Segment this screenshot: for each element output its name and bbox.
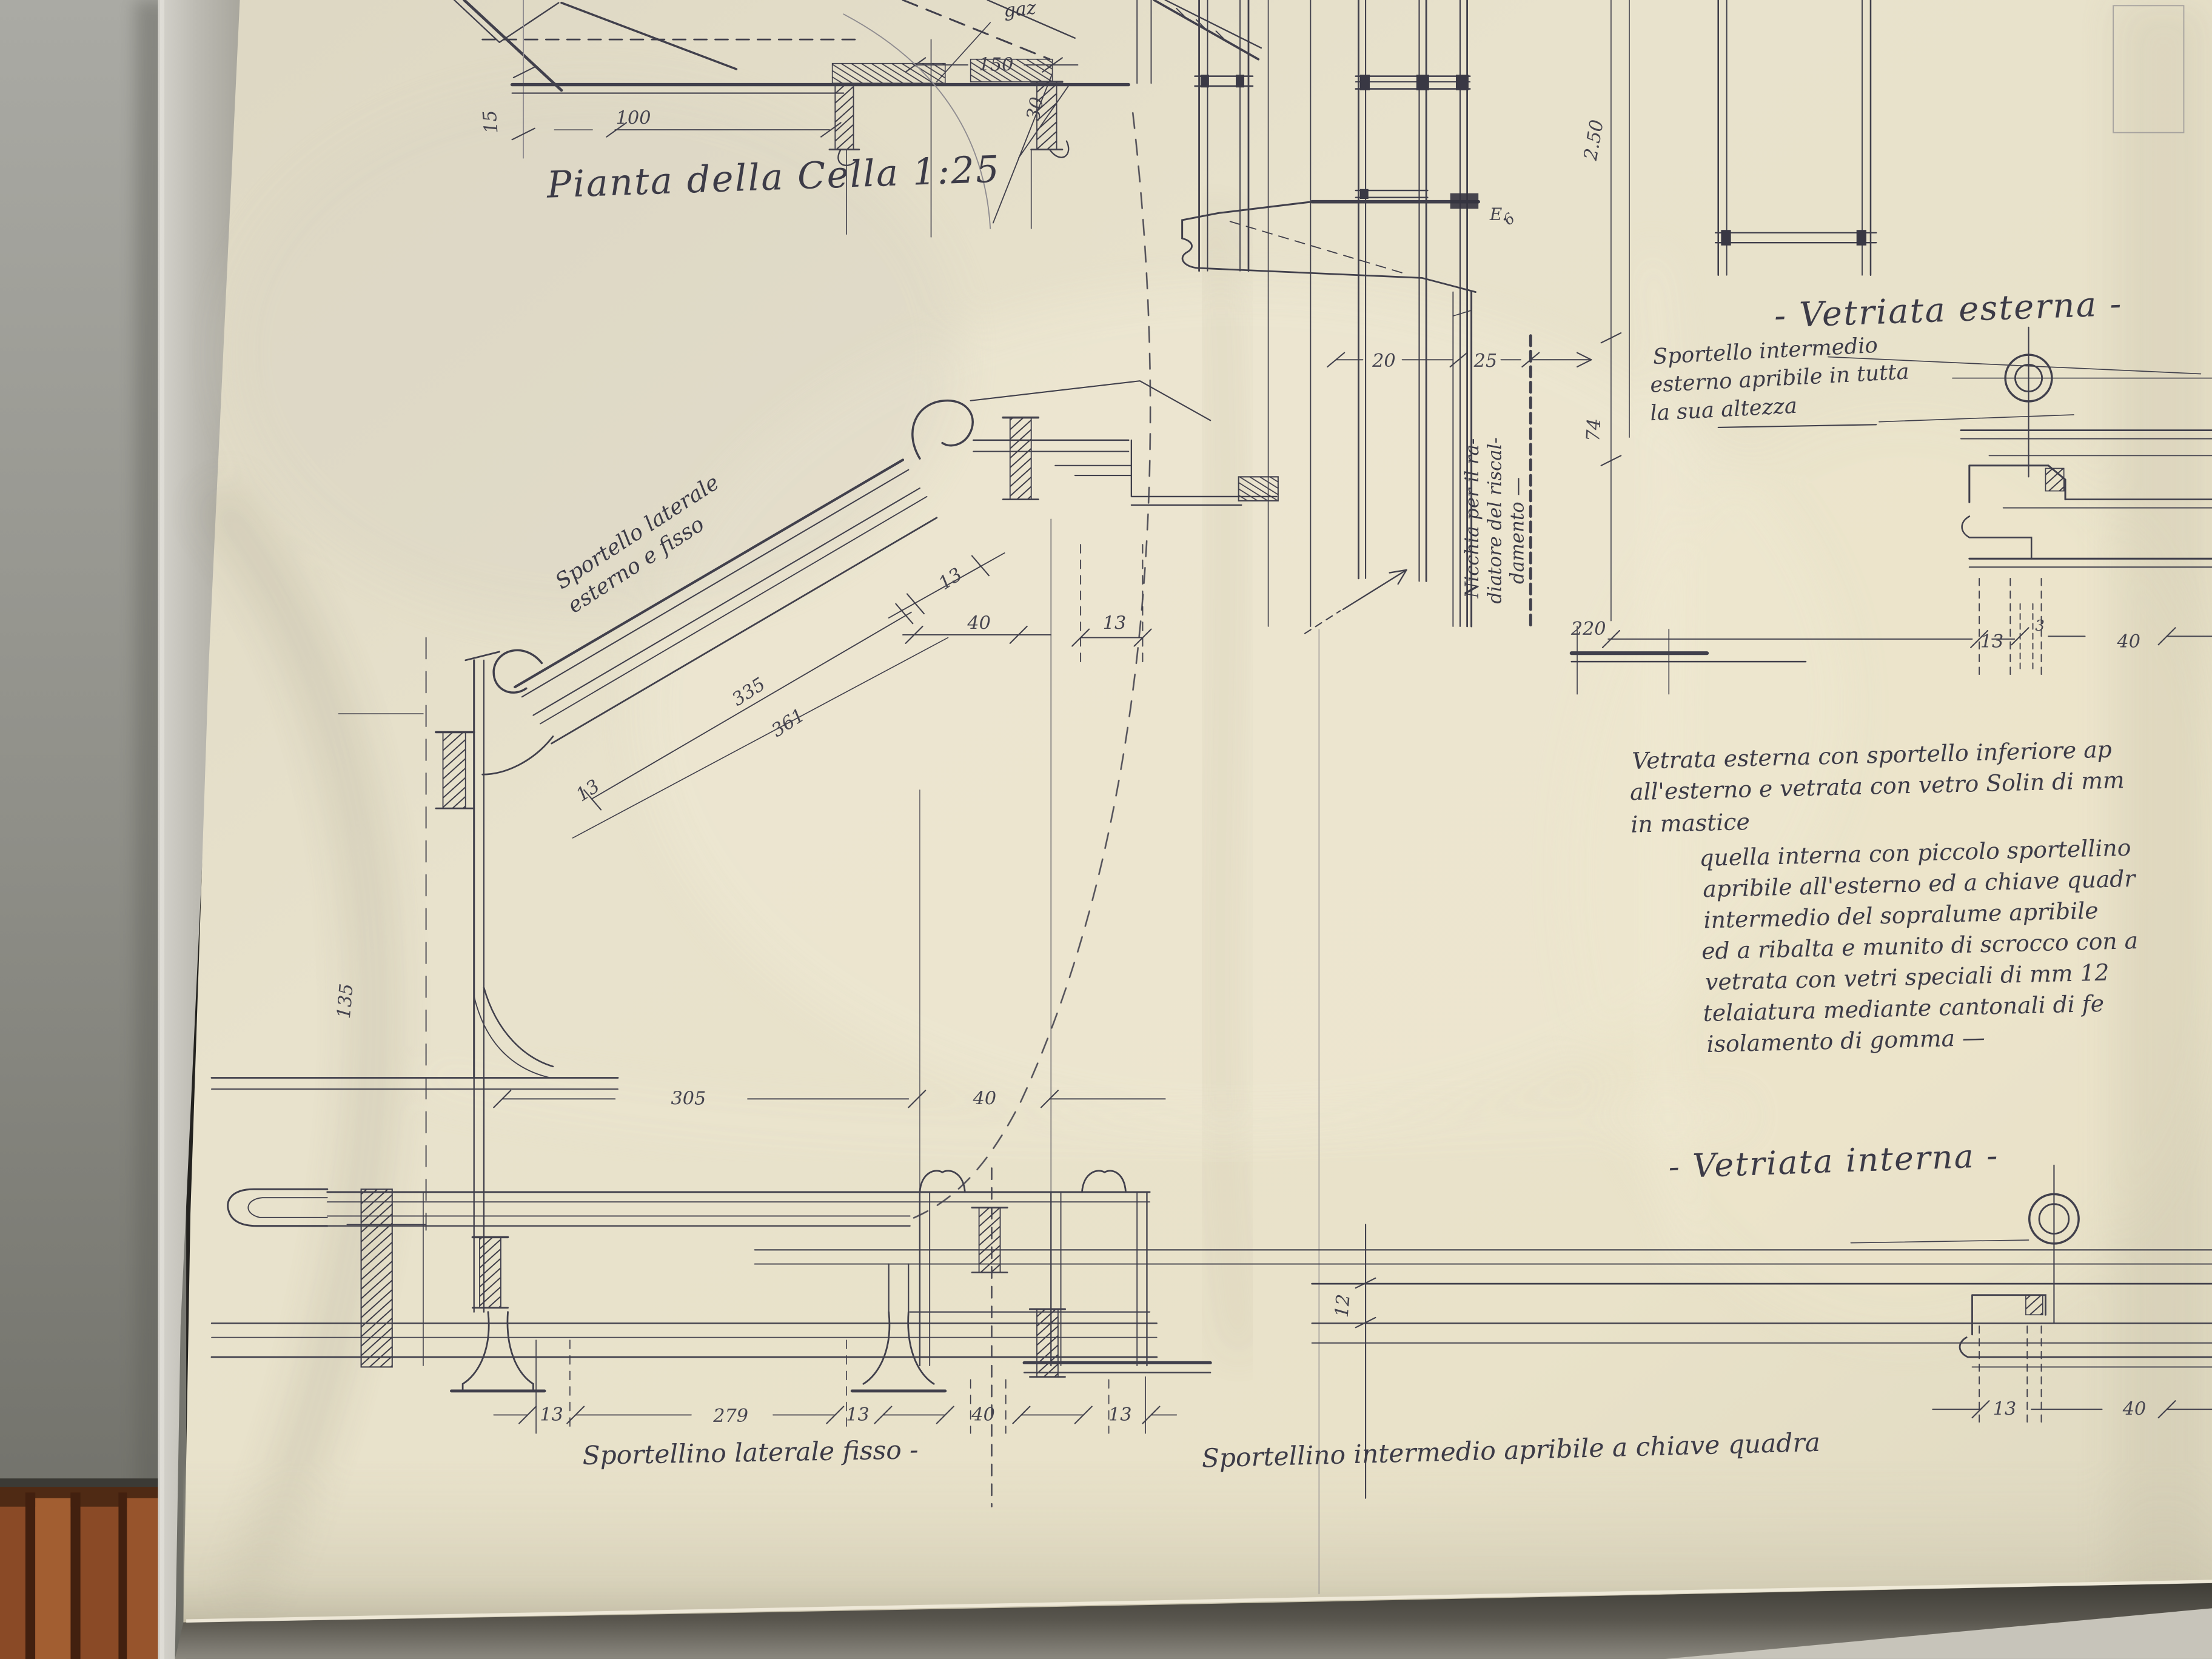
dim-74: 74: [1583, 418, 1605, 442]
specification-notes: Vetrata esterna con sportello inferiore …: [1629, 736, 2140, 1059]
wood-floor: [0, 1478, 169, 1659]
drawing-sheet-photo: Pianta della Cella 1:25 gaz Sportello la…: [0, 0, 2212, 1659]
dim-13-b3: 13: [1108, 1404, 1131, 1426]
dim-150: 150: [979, 54, 1014, 75]
niche-line3: damento —: [1507, 477, 1529, 584]
gaz-label: gaz: [1003, 0, 1038, 22]
dim-25: 25: [1473, 350, 1497, 372]
dim-40-mid: 40: [973, 1088, 996, 1110]
dim-13-right: 13: [1103, 613, 1126, 634]
niche-line2: diatore del riscal-: [1484, 437, 1506, 604]
dim-12: 12: [1332, 1293, 1355, 1318]
dim-15: 15: [479, 109, 502, 134]
dim-3: 3: [2035, 617, 2045, 634]
bottom-left-caption: Sportellino laterale fisso -: [582, 1435, 919, 1470]
dim-20: 20: [1372, 350, 1395, 372]
dim-40-diag: 40: [967, 613, 990, 634]
dim-13-b2: 13: [846, 1404, 869, 1426]
dim-305: 305: [671, 1088, 706, 1110]
dim-40-br: 40: [2122, 1399, 2146, 1420]
dim-13-row: 13: [1980, 631, 2003, 652]
niche-line1: Nicchia per il ra-: [1461, 438, 1483, 599]
dim-279: 279: [712, 1406, 748, 1427]
dim-13-b1: 13: [540, 1404, 563, 1426]
dim-40-row: 40: [2116, 631, 2140, 652]
note-line: in mastice: [1631, 808, 1750, 838]
photo-of-architectural-drawing: Pianta della Cella 1:25 gaz Sportello la…: [0, 0, 2212, 1659]
dim-135: 135: [333, 983, 358, 1020]
dim-100: 100: [616, 108, 651, 129]
dim-220: 220: [1570, 618, 1606, 640]
dim-13-br: 13: [1993, 1399, 2016, 1420]
dim-40-b: 40: [971, 1404, 994, 1426]
